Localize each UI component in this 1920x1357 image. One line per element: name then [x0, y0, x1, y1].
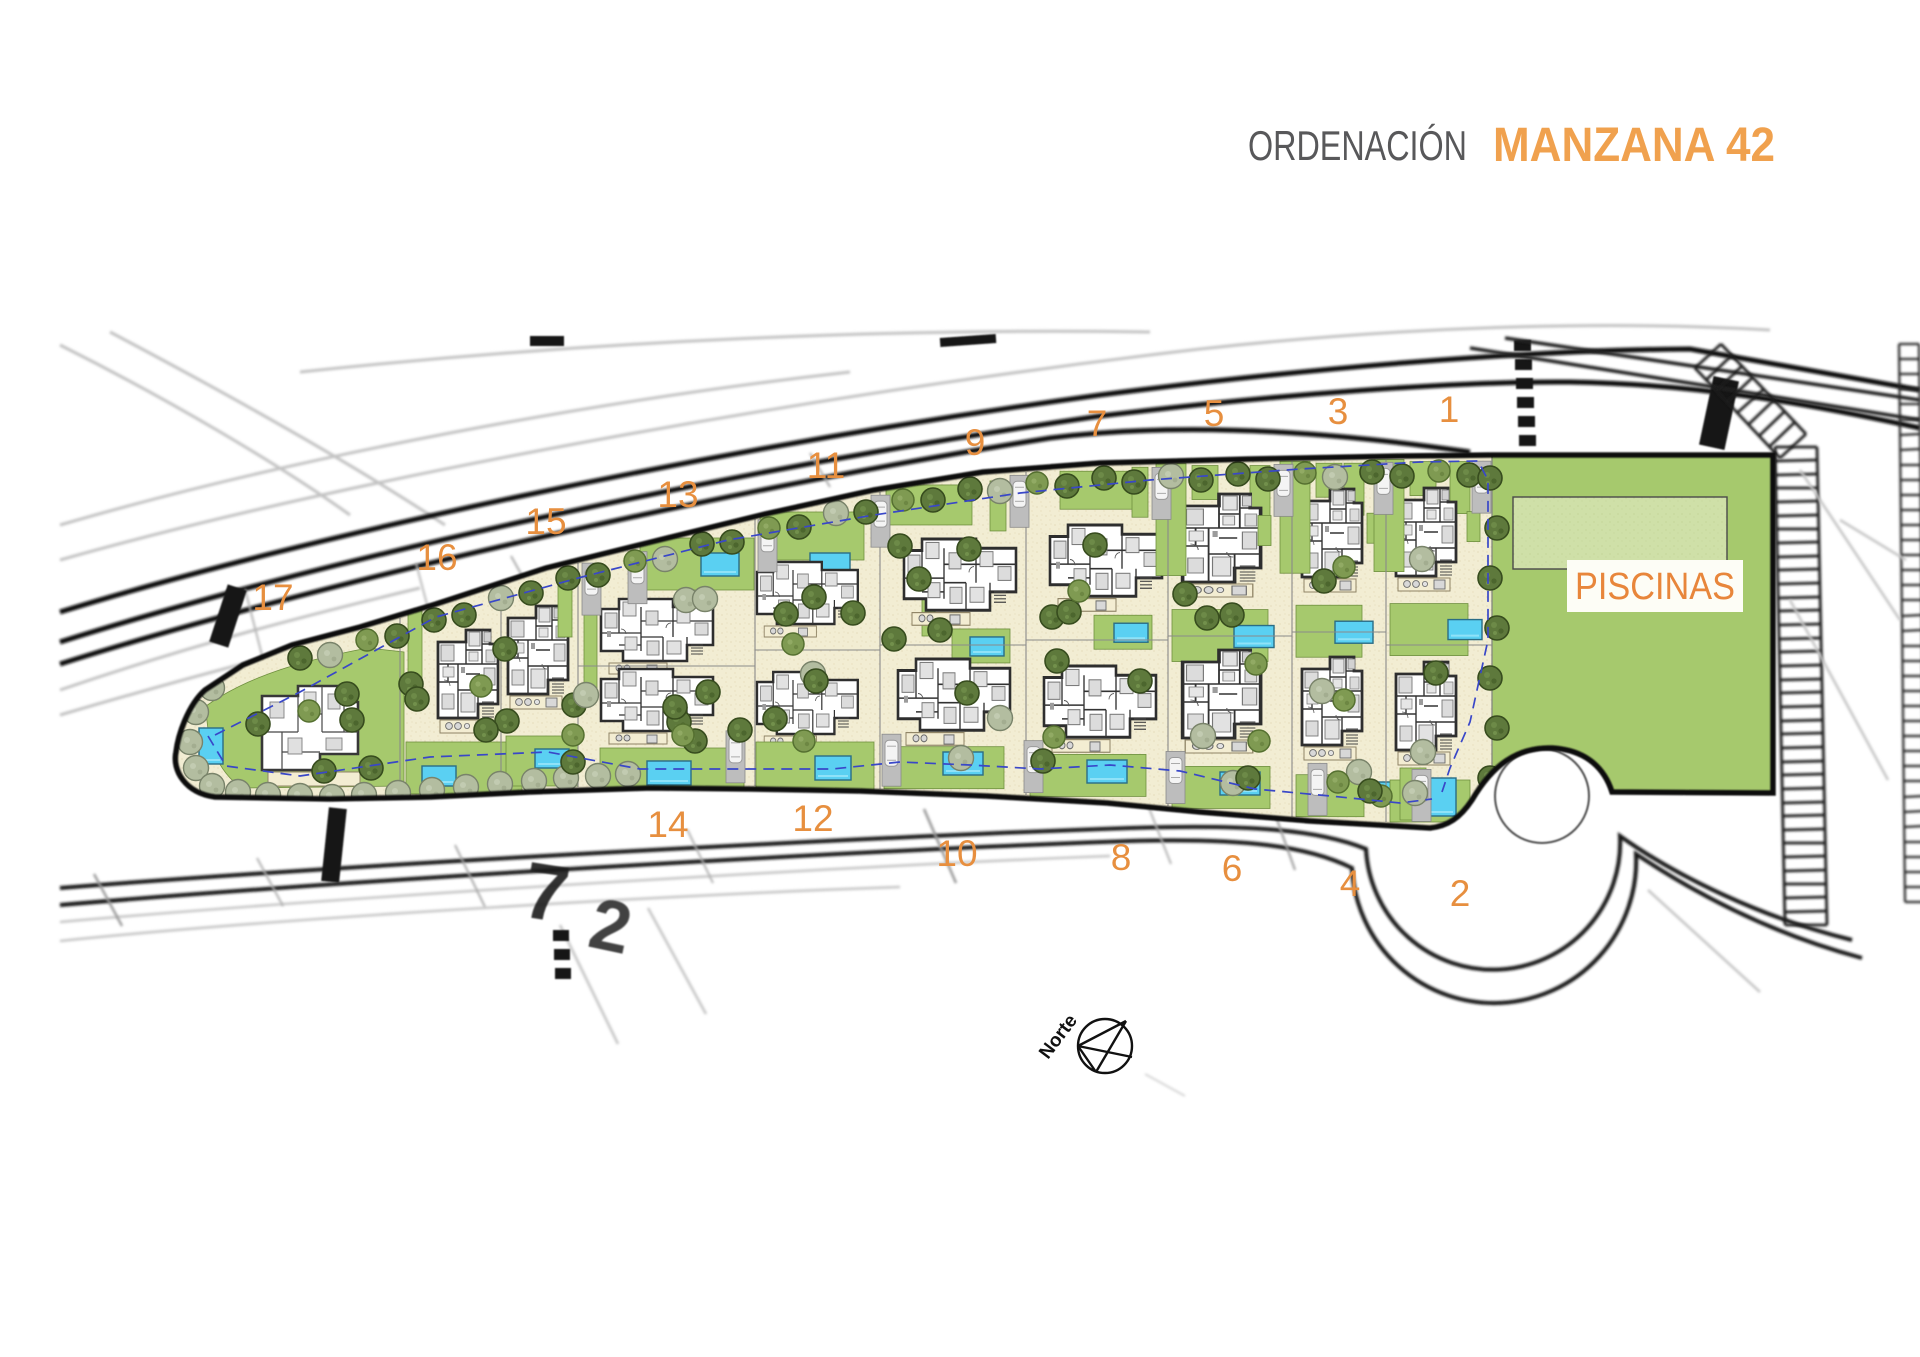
svg-text:MANZANA 42: MANZANA 42 [1493, 119, 1775, 172]
svg-text:10: 10 [936, 833, 977, 874]
svg-text:8: 8 [1111, 837, 1132, 878]
svg-text:5: 5 [1204, 393, 1225, 434]
svg-text:16: 16 [416, 537, 457, 578]
svg-text:12: 12 [792, 798, 833, 839]
svg-text:14: 14 [647, 804, 688, 845]
svg-text:6: 6 [1222, 848, 1243, 889]
svg-text:13: 13 [657, 474, 698, 515]
svg-text:9: 9 [965, 422, 986, 463]
svg-text:2: 2 [1450, 873, 1471, 914]
svg-text:7: 7 [1087, 403, 1108, 444]
svg-text:3: 3 [1328, 391, 1349, 432]
svg-text:11: 11 [807, 445, 845, 486]
svg-text:15: 15 [525, 501, 566, 542]
svg-text:4: 4 [1340, 863, 1361, 904]
svg-text:1: 1 [1439, 389, 1460, 430]
svg-text:17: 17 [252, 577, 293, 618]
svg-text:ORDENACIÓN: ORDENACIÓN [1248, 122, 1467, 169]
svg-text:PISCINAS: PISCINAS [1575, 566, 1735, 608]
